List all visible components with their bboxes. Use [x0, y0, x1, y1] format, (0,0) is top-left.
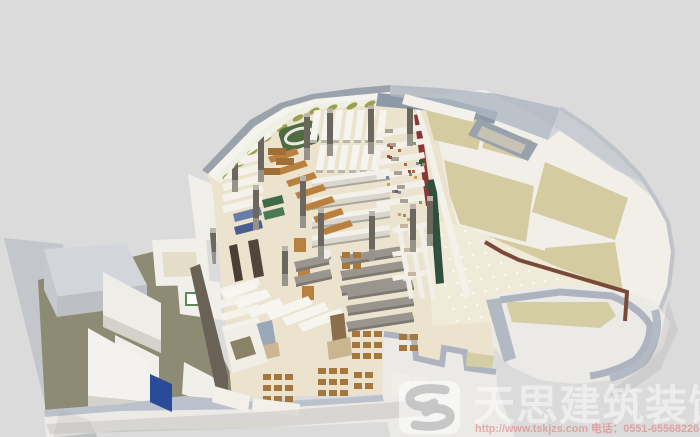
svg-text:http://www.tskjzs.com 电话：0551-: http://www.tskjzs.com 电话：0551-65568226: [475, 421, 699, 435]
svg-text:天思建筑装饰: 天思建筑装饰: [473, 382, 700, 429]
